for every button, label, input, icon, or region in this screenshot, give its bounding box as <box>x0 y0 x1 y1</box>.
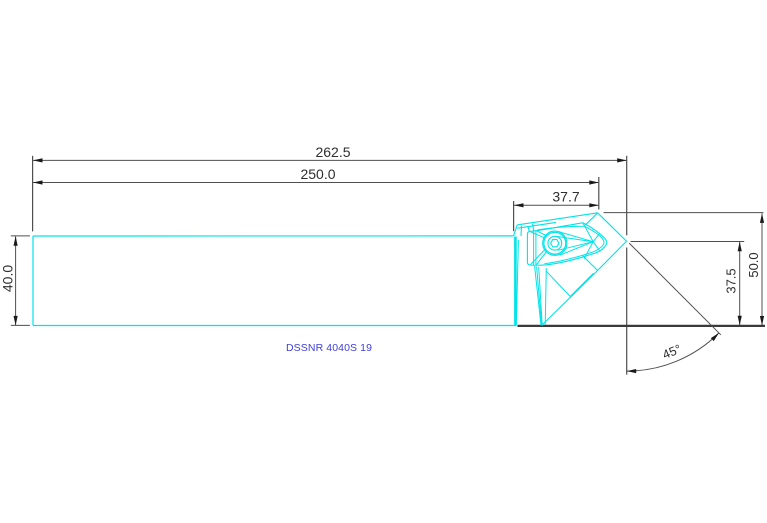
svg-text:37.7: 37.7 <box>552 189 579 205</box>
svg-text:DSSNR 4040S 19: DSSNR 4040S 19 <box>286 342 372 354</box>
svg-text:37.5: 37.5 <box>723 268 738 293</box>
svg-text:262.5: 262.5 <box>315 144 350 160</box>
svg-text:40.0: 40.0 <box>0 265 15 292</box>
svg-text:250.0: 250.0 <box>300 166 335 182</box>
svg-text:50.0: 50.0 <box>746 252 761 277</box>
